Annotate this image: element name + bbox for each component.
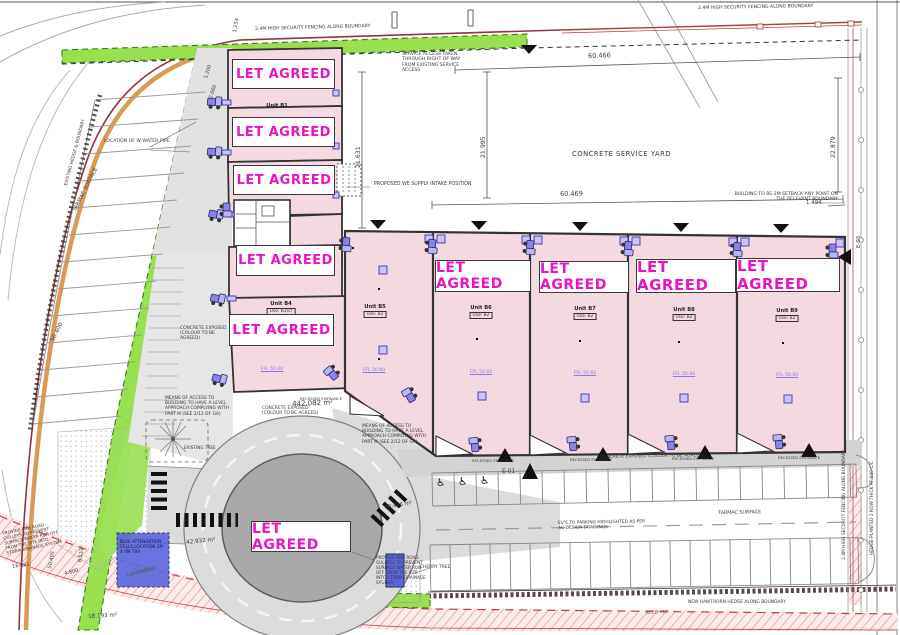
let-agreed-stamp: LET AGREED bbox=[236, 245, 335, 276]
e01-label: E-01 bbox=[502, 469, 515, 476]
unit-b9-use: Use: B2 bbox=[776, 315, 799, 322]
water-pipe-note: LOCATION OF W WATER PIPE bbox=[104, 139, 170, 144]
unit-b4-label: Unit B4 Use: B1(c) bbox=[267, 301, 296, 315]
unit-b6-label: Unit B6 Use: B2 bbox=[470, 305, 493, 319]
let-agreed-stamp: LET AGREED bbox=[251, 521, 351, 552]
ffl-label-b5: FFL 50.60 bbox=[363, 368, 385, 373]
means-access-note-2: MEANS OF ACCESS TO BUILDING TO HAVE A LE… bbox=[362, 424, 426, 445]
ffl-label-b6: FFL 50.60 bbox=[470, 370, 492, 375]
unit-b5-use: Use: B2 bbox=[364, 311, 387, 318]
unit-b7-label: Unit B7 Use: B2 bbox=[574, 306, 597, 320]
let-agreed-stamp: LET AGREED bbox=[435, 260, 531, 292]
unit-b8-label: Unit B8 Use: B2 bbox=[673, 307, 696, 321]
recessed-entrance-label: RECESSED ENTRANCE bbox=[778, 456, 820, 460]
dim-22879: 22.879 bbox=[830, 136, 837, 158]
let-agreed-stamp: LET AGREED bbox=[233, 165, 335, 195]
recessed-entrance-label: RECESSED ENTRANCE bbox=[570, 458, 612, 462]
let-agreed-stamp: LET AGREED bbox=[229, 314, 334, 346]
ev-parking-note: EV'S TO PARKING HIGHLIGHTED AS PER AC DE… bbox=[558, 519, 646, 531]
let-agreed-stamp: LET AGREED bbox=[232, 59, 335, 89]
seed-mix-note: SEED MIX bbox=[645, 610, 669, 617]
unit-b7-use: Use: B2 bbox=[574, 313, 597, 320]
unit-b1-label: Unit B1 bbox=[266, 103, 288, 109]
means-access-note-1: MEANS OF ACCESS TO BUILDING TO HAVE A LE… bbox=[165, 396, 229, 417]
dim-21631: 21.631 bbox=[355, 146, 362, 168]
concrete-exposed-note-left: CONCRETE EXPOSED (COLOUR TO BE AGREED) bbox=[180, 326, 230, 342]
let-agreed-stamp: LET AGREED bbox=[232, 117, 335, 147]
ffl-label-b7: FFL 50.60 bbox=[574, 371, 596, 376]
unit-b5-name: Unit B5 bbox=[364, 304, 386, 310]
unit-b5-label: Unit B5 Use: B2 bbox=[364, 304, 387, 318]
hawthorn-note: NEW HAWTHORN HEDGE ALONG BOUNDARY bbox=[688, 600, 786, 605]
unit-b8-name: Unit B8 bbox=[673, 307, 695, 313]
unit-b9-name: Unit B9 bbox=[776, 308, 798, 314]
e03-label: E-03 bbox=[856, 236, 862, 248]
disabled-parking-icon: ♿ bbox=[480, 475, 489, 487]
unit-b6-name: Unit B6 bbox=[470, 305, 492, 311]
dim-60469: 60.469 bbox=[560, 191, 583, 199]
ffl-label-b4: FFL 50.60 bbox=[261, 367, 283, 372]
unit-b9-label: Unit B9 Use: B2 bbox=[776, 308, 799, 322]
existing-tree-label: EXISTING TREE bbox=[184, 446, 216, 451]
hedge-right-note: HEDGE PLANTED 2 ROW THICK AT 600 C/C bbox=[870, 461, 875, 555]
gulleys-note-right: PROVIDE 8NO ROAD GULLEYS TO PREVENT SURF… bbox=[376, 556, 428, 586]
site-plan: 2.4M HIGH SECURITY FENCING ALONG BOUNDAR… bbox=[0, 0, 900, 635]
let-agreed-stamp: LET AGREED bbox=[636, 259, 736, 293]
service-yard-label: CONCRETE SERVICE YARD bbox=[572, 150, 671, 158]
dim-21995: 21.995 bbox=[480, 136, 487, 158]
fence-right-note: 2.4M HIGH SECURITY FENCING ALONG BOUNDAR… bbox=[842, 450, 847, 560]
tarmac-label-right: TARMAC SURFACE bbox=[718, 510, 761, 516]
dim-60466: 60.466 bbox=[588, 52, 611, 60]
ffl-label-b8: FFL 50.60 bbox=[673, 372, 695, 377]
unit-b4-name: Unit B4 bbox=[270, 301, 292, 307]
ffl-label-b9: FFL 50.60 bbox=[776, 373, 798, 378]
supply-intake-note: PROPOSED WE SUPPLY INTAKE POSITION bbox=[374, 182, 471, 188]
dim-1494: 1.494 bbox=[806, 200, 821, 206]
unit-b7-name: Unit B7 bbox=[574, 306, 596, 312]
let-agreed-stamp: LET AGREED bbox=[539, 261, 629, 293]
cherry-tree-label: CHERRY TREE bbox=[420, 565, 450, 570]
unit-b8-use: Use: B2 bbox=[673, 314, 696, 321]
disabled-parking-icon: ♿ bbox=[458, 476, 467, 488]
attenuation-note: BLUE ATTENUATION CELLS LOCATION 2M X 4M … bbox=[120, 540, 166, 555]
disabled-parking-icon: ♿ bbox=[436, 477, 445, 489]
unit-b6-use: Use: B2 bbox=[470, 312, 493, 319]
area-yard: 442.082 m² bbox=[292, 399, 333, 409]
unit-b1-name: Unit B1 bbox=[266, 103, 288, 109]
let-agreed-stamp: LET AGREED bbox=[736, 258, 840, 292]
recessed-entrance-label: RECESSED ENTRANCE bbox=[672, 457, 714, 461]
recessed-entrance-label: RECESSED ENTRANCE bbox=[472, 459, 514, 463]
service-access-note: SERVICE ACCESS TAKEN THROUGH RIGHT OF WA… bbox=[402, 52, 474, 74]
